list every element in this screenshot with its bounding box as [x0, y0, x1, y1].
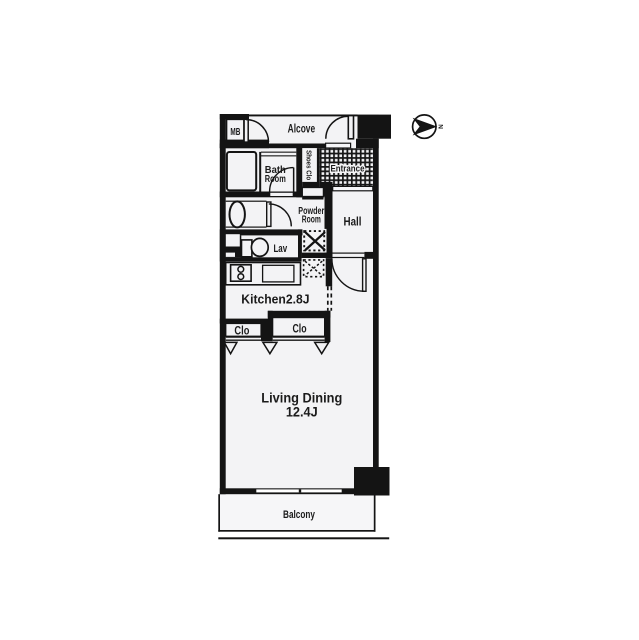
svg-text:Room: Room: [265, 173, 286, 185]
svg-text:Kitchen2.8J: Kitchen2.8J: [241, 291, 309, 306]
svg-text:N: N: [437, 124, 444, 129]
svg-text:Balcony: Balcony: [283, 509, 316, 521]
svg-text:Lav: Lav: [273, 243, 287, 255]
svg-text:Alcove: Alcove: [288, 121, 316, 135]
svg-text:Shoes Clo: Shoes Clo: [305, 150, 314, 181]
svg-text:MB: MB: [230, 126, 240, 138]
svg-text:Entrance: Entrance: [331, 163, 365, 174]
svg-text:Clo: Clo: [234, 326, 249, 338]
svg-text:Hall: Hall: [344, 217, 362, 229]
svg-text:Room: Room: [302, 214, 321, 226]
svg-text:Clo: Clo: [292, 324, 306, 336]
svg-text:12.4J: 12.4J: [286, 404, 318, 420]
